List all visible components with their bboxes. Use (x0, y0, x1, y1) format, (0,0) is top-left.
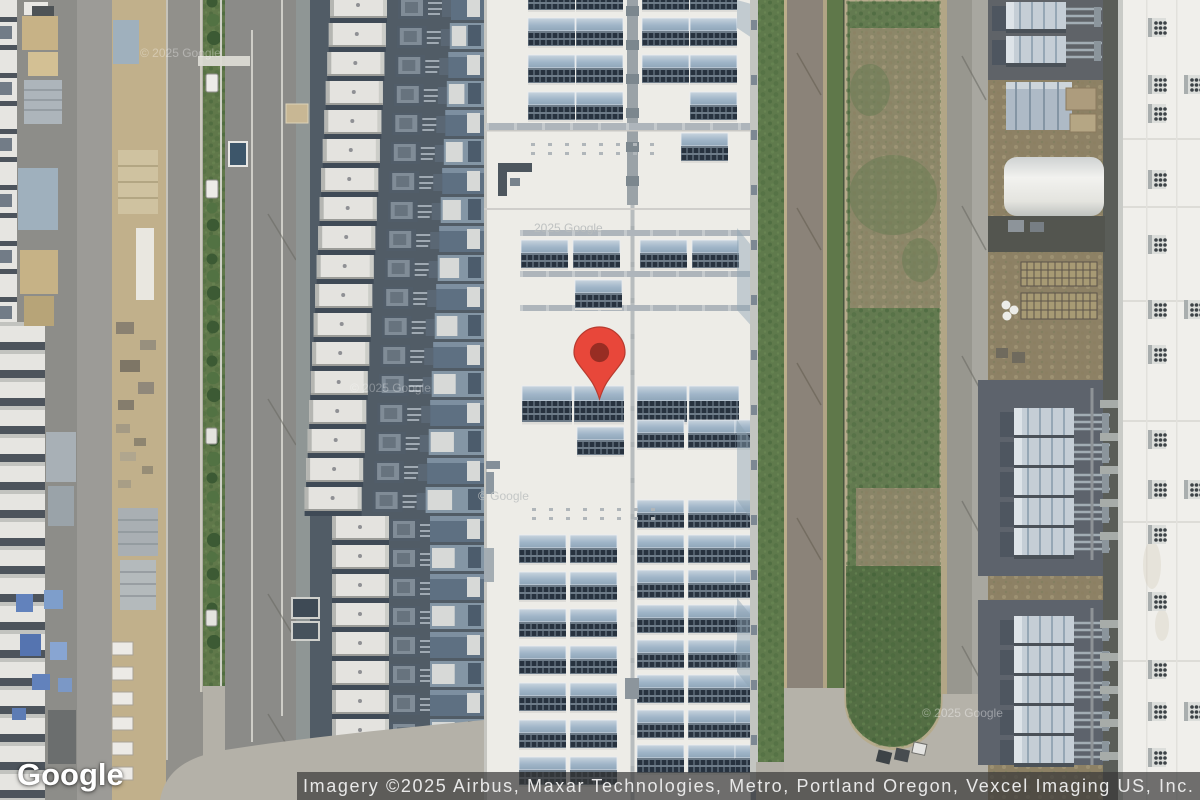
svg-text:© 2025 Google: © 2025 Google (140, 46, 221, 60)
svg-text:2025 Google: 2025 Google (534, 221, 603, 235)
svg-text:© Google: © Google (478, 489, 529, 503)
svg-text:© 2025 Google: © 2025 Google (350, 381, 431, 395)
svg-text:© 2025 Google: © 2025 Google (922, 706, 1003, 720)
